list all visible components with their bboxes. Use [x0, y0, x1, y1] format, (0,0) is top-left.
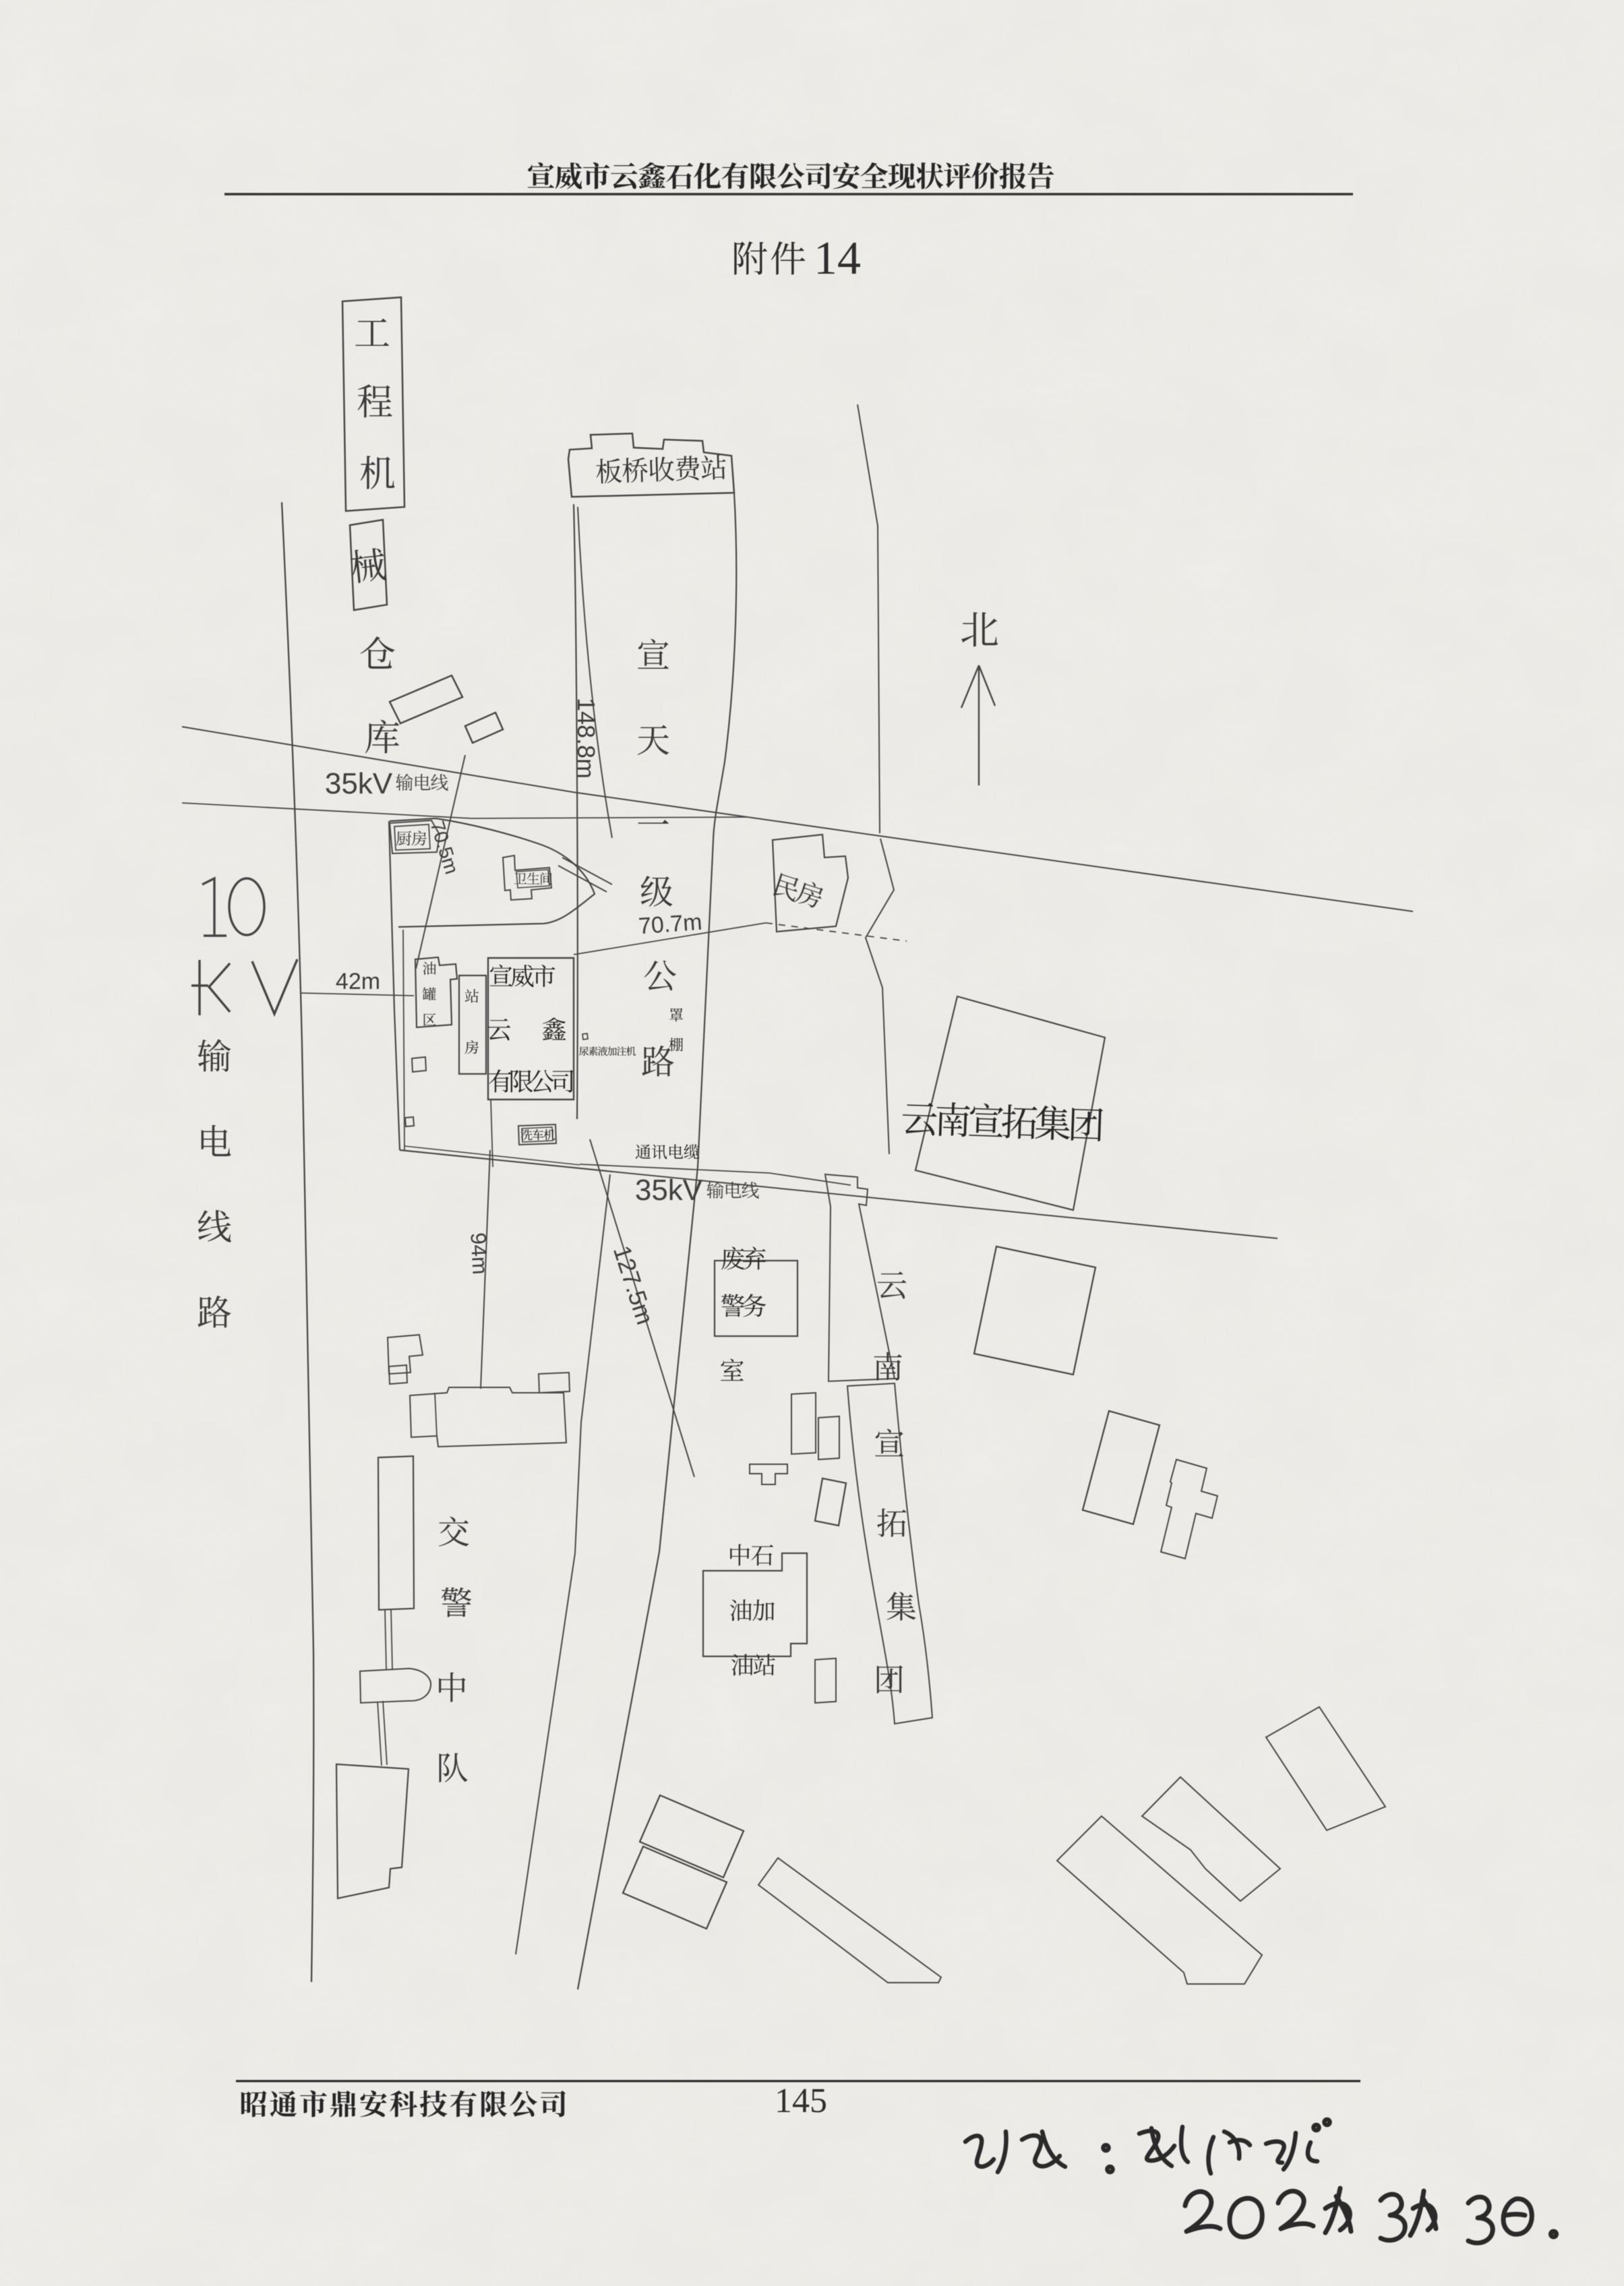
svg-text:94m: 94m	[466, 1232, 492, 1275]
svg-text:35kV: 35kV	[635, 1174, 703, 1207]
svg-text:145: 145	[775, 2082, 827, 2120]
svg-text:35kV: 35kV	[325, 767, 393, 800]
svg-text:14: 14	[814, 233, 861, 284]
svg-text:148.8m: 148.8m	[572, 698, 600, 779]
svg-text:42m: 42m	[336, 969, 380, 994]
svg-text:70.7m: 70.7m	[638, 909, 703, 939]
